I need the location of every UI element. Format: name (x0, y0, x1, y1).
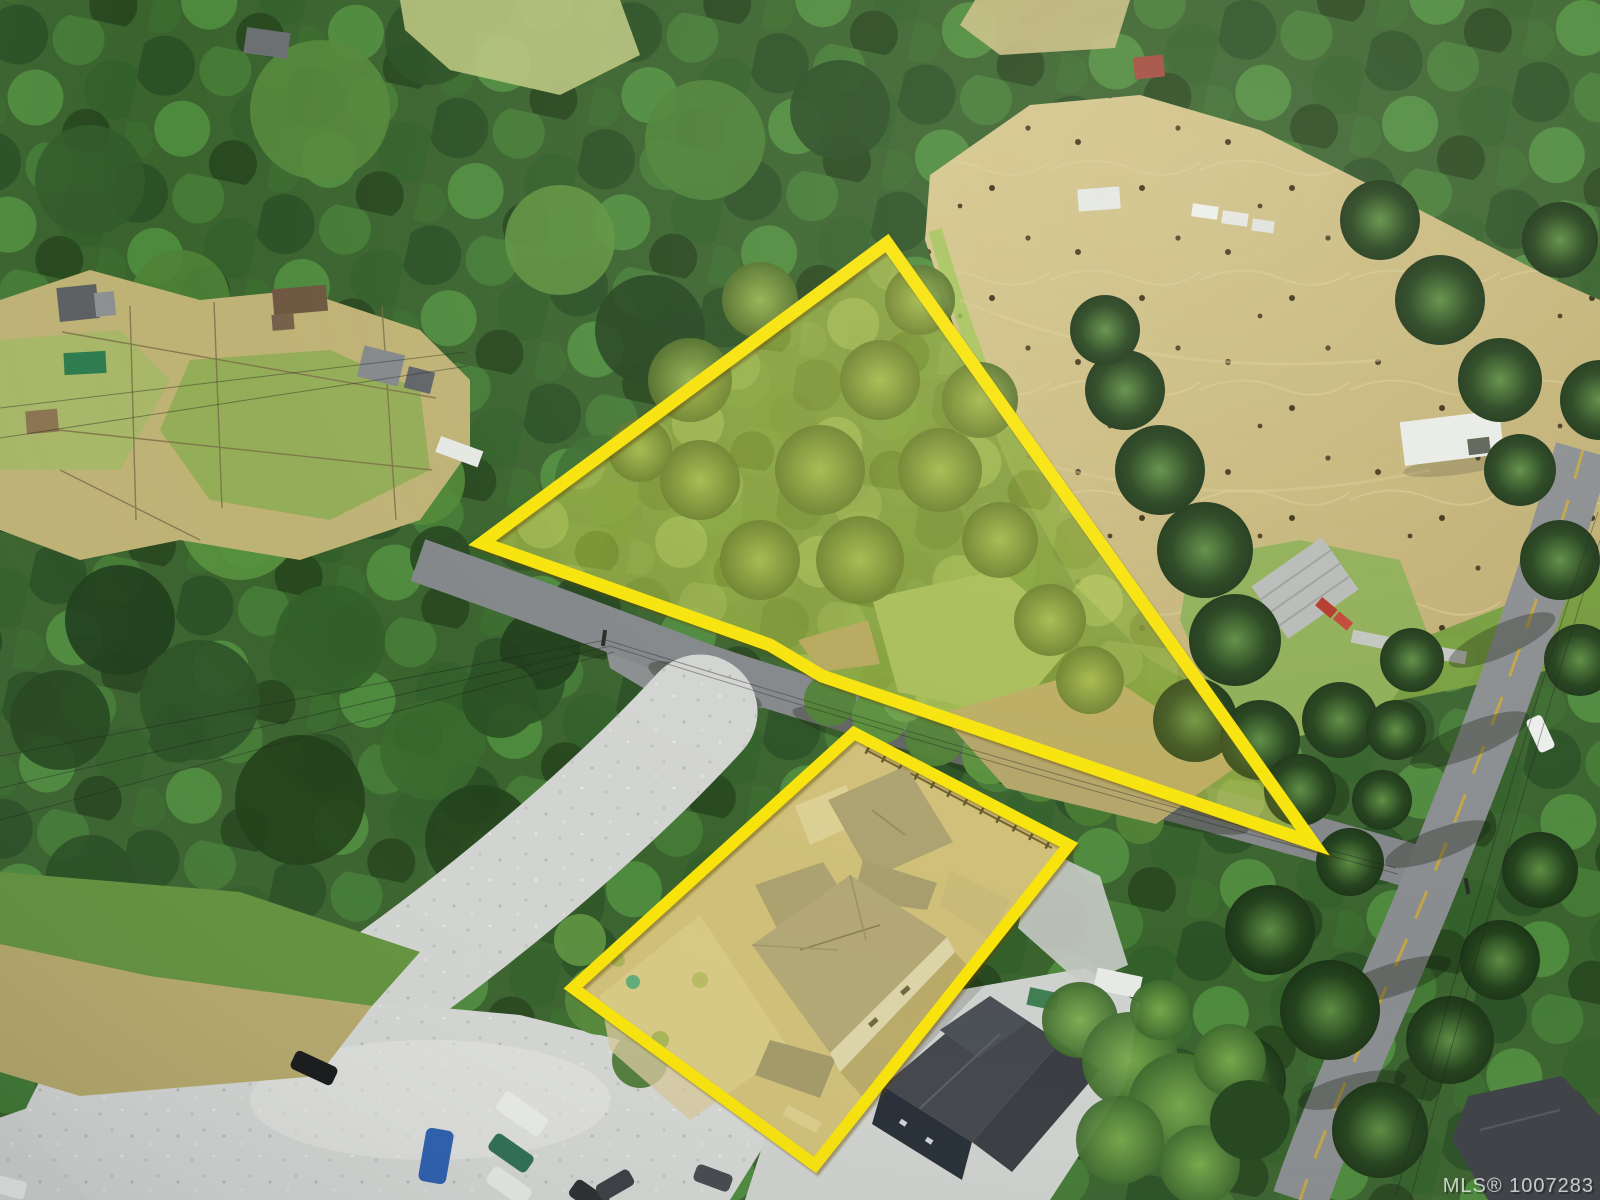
aerial-photo-canvas: MLS® 1007283 MLS® 1007283 (0, 0, 1600, 1200)
aerial-photo: MLS® 1007283 MLS® 1007283 (0, 0, 1600, 1200)
light-vignette (0, 0, 1600, 1200)
mls-watermark: MLS® 1007283 (1443, 1175, 1594, 1197)
